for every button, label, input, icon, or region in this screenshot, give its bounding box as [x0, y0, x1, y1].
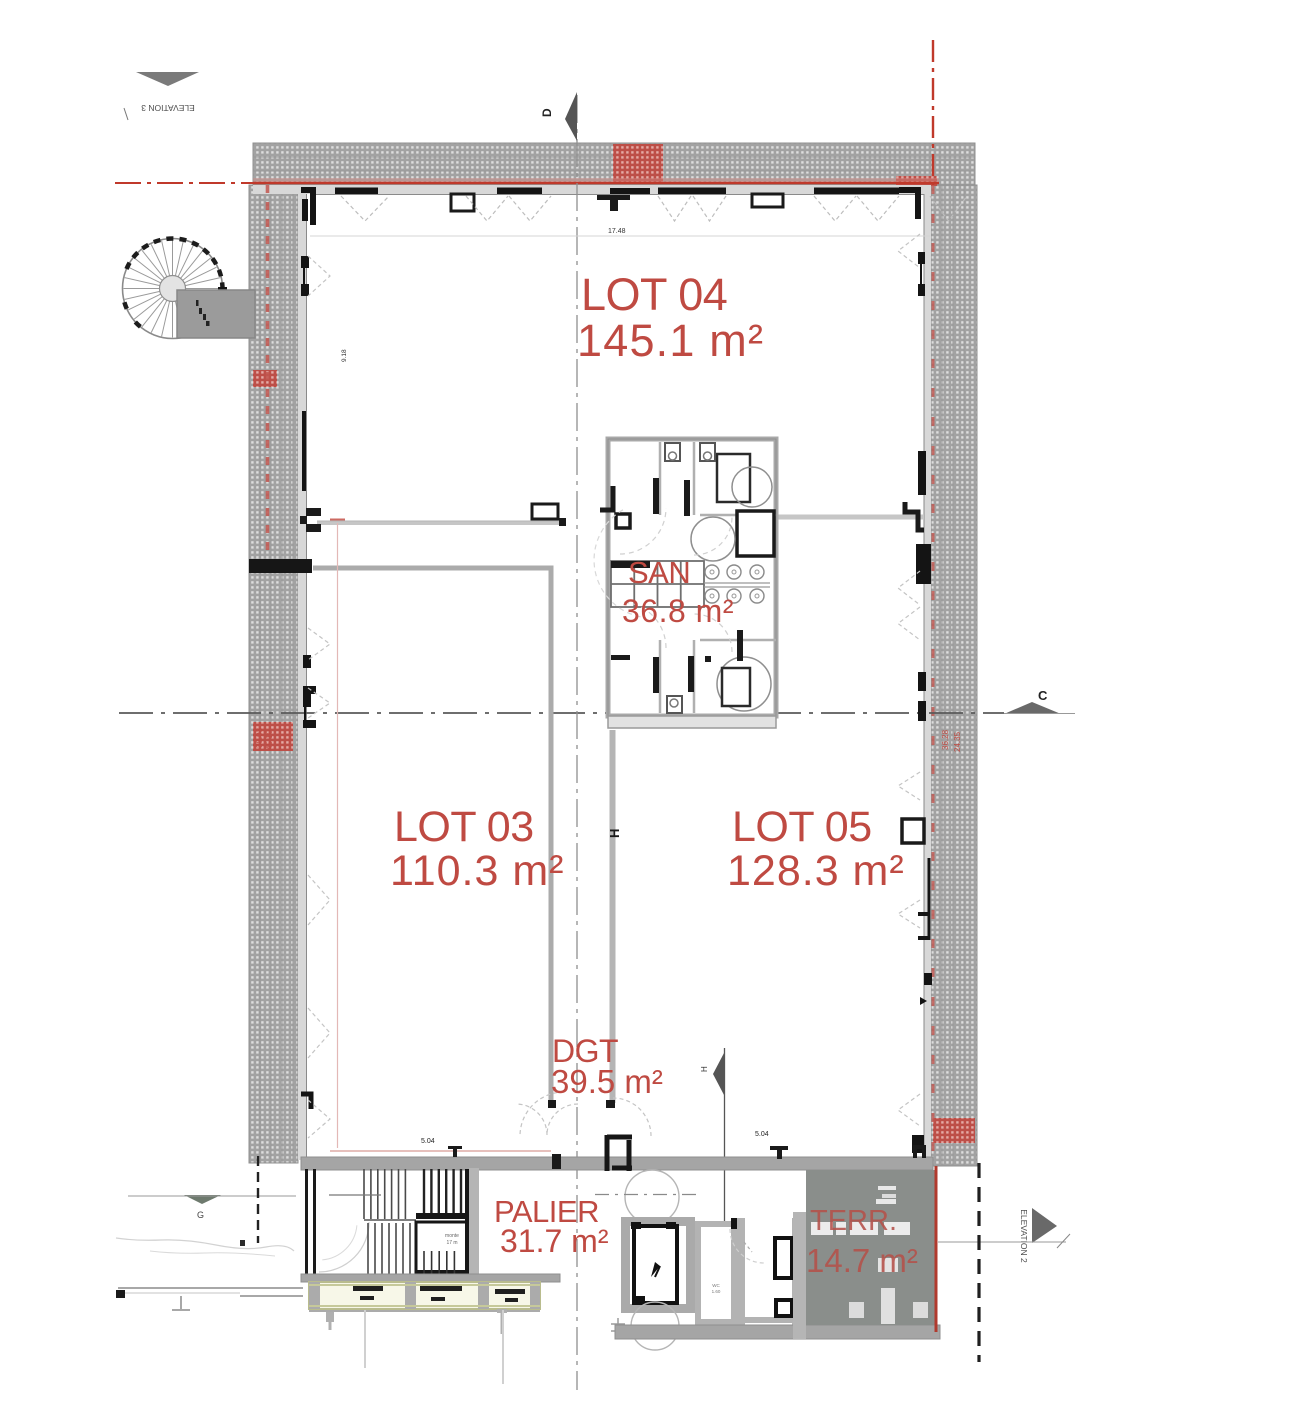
- svg-text:G: G: [197, 1210, 204, 1220]
- svg-text:110.3 m²: 110.3 m²: [390, 847, 565, 895]
- svg-text:9.18: 9.18: [341, 349, 348, 362]
- svg-text:ELEVATION 3: ELEVATION 3: [141, 103, 195, 113]
- svg-text:LOT 05: LOT 05: [732, 803, 872, 851]
- svg-text:17.48: 17.48: [608, 228, 626, 235]
- svg-text:SAN: SAN: [628, 555, 690, 590]
- svg-text:H: H: [607, 829, 622, 838]
- svg-text:36.28: 36.28: [941, 729, 950, 750]
- svg-text:38.03: 38.03: [255, 727, 264, 748]
- svg-text:TERR.: TERR.: [810, 1205, 897, 1237]
- svg-text:1.60: 1.60: [712, 1289, 721, 1294]
- svg-text:14.7 m²: 14.7 m²: [806, 1242, 918, 1279]
- svg-text:36.8 m²: 36.8 m²: [622, 593, 734, 629]
- svg-text:24.35: 24.35: [953, 731, 962, 752]
- svg-text:17 m: 17 m: [446, 1240, 457, 1246]
- svg-text:5.04: 5.04: [755, 1131, 769, 1138]
- svg-text:C: C: [1038, 688, 1048, 703]
- svg-text:LOT 03: LOT 03: [394, 803, 534, 851]
- svg-text:H: H: [700, 1066, 709, 1072]
- svg-text:D: D: [540, 108, 554, 117]
- svg-text:39.5 m²: 39.5 m²: [551, 1063, 663, 1100]
- svg-text:WC: WC: [712, 1283, 720, 1288]
- svg-text:LOT 04: LOT 04: [581, 269, 727, 320]
- svg-text:5.04: 5.04: [421, 1138, 435, 1145]
- svg-text:monte: monte: [445, 1233, 459, 1239]
- svg-text:128.3 m²: 128.3 m²: [727, 847, 905, 895]
- svg-text:145.1 m²: 145.1 m²: [577, 315, 764, 366]
- svg-text:31.7 m²: 31.7 m²: [500, 1223, 609, 1259]
- svg-text:ELEVATION 2: ELEVATION 2: [1019, 1209, 1029, 1263]
- svg-text:45.10: 45.10: [265, 729, 274, 750]
